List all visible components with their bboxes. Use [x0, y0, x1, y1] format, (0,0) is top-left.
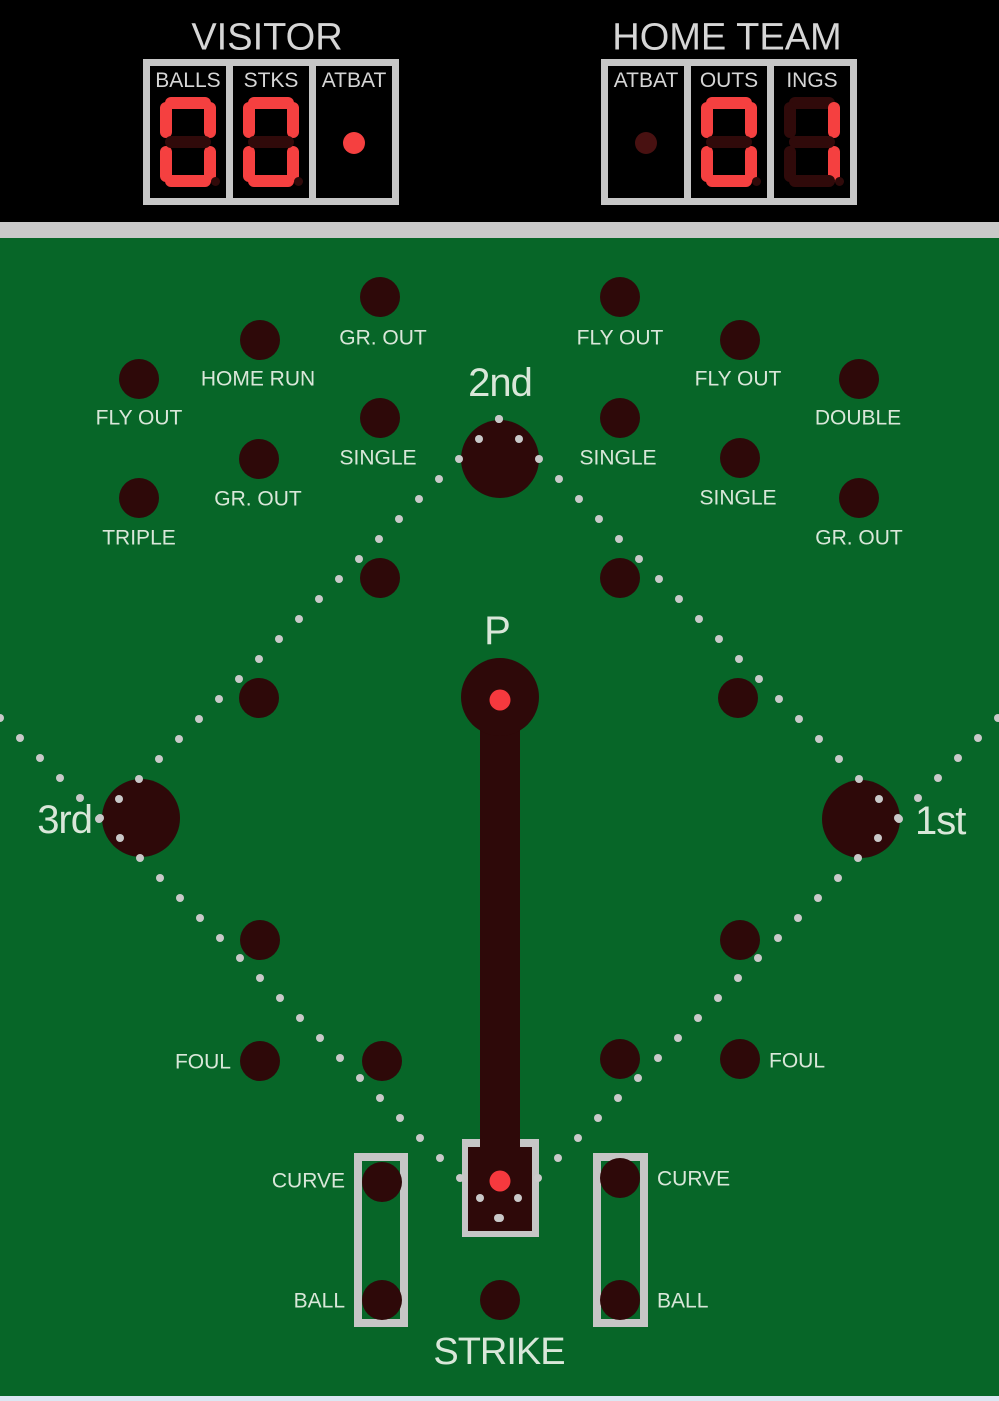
hole-label-fly-out: FLY OUT: [577, 328, 664, 349]
base-path-dot: [456, 1174, 464, 1182]
base-path-dot: [335, 575, 343, 583]
hole-single[interactable]: [600, 398, 640, 438]
base-path-dot: [436, 1154, 444, 1162]
base-path-dot: [614, 1094, 622, 1102]
base-path-dot: [735, 655, 743, 663]
hole-unlabeled[interactable]: [720, 920, 760, 960]
base-path-dot: [376, 1094, 384, 1102]
hole-ball[interactable]: [362, 1280, 402, 1320]
hole-fly-out[interactable]: [720, 320, 760, 360]
hole-label-home-run: HOME RUN: [201, 369, 315, 390]
base-path-dot: [654, 1054, 662, 1062]
base-path-dot: [595, 515, 603, 523]
base-path-dot: [675, 595, 683, 603]
base-path-dot: [515, 435, 523, 443]
hole-label-curve: CURVE: [272, 1171, 345, 1192]
third-base-hole[interactable]: [102, 779, 180, 857]
base-path-dot: [156, 874, 164, 882]
base-path-dot: [196, 914, 204, 922]
hole-foul[interactable]: [240, 1041, 280, 1081]
base-path-dot: [116, 834, 124, 842]
base-path-dot: [934, 774, 942, 782]
base-path-dot: [775, 695, 783, 703]
hole-single[interactable]: [720, 438, 760, 478]
hole-home-run[interactable]: [240, 320, 280, 360]
base-path-dot: [295, 615, 303, 623]
hole-double[interactable]: [839, 359, 879, 399]
base-path-dot: [574, 1134, 582, 1142]
base-path-dot: [476, 1194, 484, 1202]
hole-label-gr-out: GR. OUT: [339, 328, 427, 349]
base-path-dot: [396, 1114, 404, 1122]
base-path-dot: [855, 775, 863, 783]
hole-unlabeled[interactable]: [239, 678, 279, 718]
base-path-dot: [815, 735, 823, 743]
hole-label-single: SINGLE: [579, 448, 656, 469]
base-path-dot: [774, 934, 782, 942]
hole-strike[interactable]: [480, 1280, 520, 1320]
base-path-dot: [575, 495, 583, 503]
hole-gr-out[interactable]: [239, 439, 279, 479]
hole-unlabeled[interactable]: [240, 920, 280, 960]
hole-label-fly-out: FLY OUT: [695, 369, 782, 390]
hole-label-strike: STRIKE: [433, 1333, 564, 1371]
hole-label-foul: FOUL: [175, 1052, 231, 1073]
hole-gr-out[interactable]: [360, 277, 400, 317]
hole-triple[interactable]: [119, 478, 159, 518]
base-path-dot: [155, 755, 163, 763]
base-path-dot: [355, 555, 363, 563]
base-path-dot: [734, 974, 742, 982]
base-path-dot: [0, 714, 4, 722]
base-path-dot: [36, 754, 44, 762]
base-path-dot: [634, 1074, 642, 1082]
base-path-dot: [714, 994, 722, 1002]
base-path-dot: [554, 1154, 562, 1162]
hole-unlabeled[interactable]: [600, 558, 640, 598]
base-path-dot: [235, 675, 243, 683]
playfield-inner: GR. OUTFLY OUTHOME RUNFLY OUTFLY OUTDOUB…: [0, 0, 999, 1401]
hole-label-foul: FOUL: [769, 1051, 825, 1072]
base-path-dot: [236, 954, 244, 962]
base-path-dot: [176, 894, 184, 902]
base-path-dot: [874, 834, 882, 842]
base-path-dot: [356, 1074, 364, 1082]
base-path-dot: [275, 635, 283, 643]
base-path-dot: [455, 455, 463, 463]
base-path-dot: [695, 615, 703, 623]
base-path-dot: [755, 675, 763, 683]
hole-unlabeled[interactable]: [600, 1039, 640, 1079]
base-path-dot: [135, 775, 143, 783]
base-path-dot: [555, 475, 563, 483]
hole-ball[interactable]: [600, 1280, 640, 1320]
pitcher-base-label: P: [484, 611, 510, 651]
base-path-dot: [416, 1134, 424, 1142]
base-path-dot: [854, 854, 862, 862]
hole-fly-out[interactable]: [600, 277, 640, 317]
base-path-dot: [795, 715, 803, 723]
base-path-dot: [494, 1214, 502, 1222]
base-path-dot: [635, 555, 643, 563]
hole-foul[interactable]: [720, 1039, 760, 1079]
game-board: VISITOR HOME TEAM BALLSSTKSATBAT ATBATOU…: [0, 0, 999, 1401]
third-base-label: 3rd: [37, 800, 92, 840]
hole-label-curve: CURVE: [657, 1169, 730, 1190]
bottom-edge-line: [0, 1396, 999, 1401]
hole-curve[interactable]: [362, 1162, 402, 1202]
base-path-dot: [594, 1114, 602, 1122]
base-path-dot: [195, 715, 203, 723]
base-path-dot: [395, 515, 403, 523]
base-path-dot: [315, 595, 323, 603]
base-path-dot: [56, 774, 64, 782]
base-path-dot: [276, 994, 284, 1002]
base-path-dot: [535, 455, 543, 463]
second-base-hole[interactable]: [461, 420, 539, 498]
hole-unlabeled[interactable]: [362, 1041, 402, 1081]
hole-label-single: SINGLE: [699, 488, 776, 509]
base-path-dot: [875, 795, 883, 803]
base-path-dot: [215, 695, 223, 703]
base-path-dot: [296, 1014, 304, 1022]
base-path-dot: [495, 415, 503, 423]
base-path-dot: [255, 655, 263, 663]
base-path-dot: [754, 954, 762, 962]
pitcher-lane: [480, 697, 520, 1202]
hole-fly-out[interactable]: [119, 359, 159, 399]
base-path-dot: [514, 1194, 522, 1202]
hole-curve[interactable]: [600, 1158, 640, 1198]
base-path-dot: [834, 874, 842, 882]
hole-label-fly-out: FLY OUT: [96, 408, 183, 429]
base-path-dot: [715, 635, 723, 643]
hole-label-single: SINGLE: [339, 448, 416, 469]
pitcher-ball-marker: [490, 690, 511, 711]
base-path-dot: [216, 934, 224, 942]
base-path-dot: [994, 714, 999, 722]
base-path-dot: [136, 854, 144, 862]
base-path-dot: [316, 1034, 324, 1042]
base-path-dot: [375, 535, 383, 543]
base-path-dot: [814, 894, 822, 902]
hole-label-ball: BALL: [657, 1291, 708, 1312]
base-path-dot: [256, 974, 264, 982]
hole-label-double: DOUBLE: [815, 408, 901, 429]
base-path-dot: [835, 755, 843, 763]
hole-label-gr-out: GR. OUT: [214, 489, 302, 510]
base-path-dot: [794, 914, 802, 922]
base-path-dot: [415, 495, 423, 503]
base-path-dot: [674, 1034, 682, 1042]
base-path-dot: [615, 535, 623, 543]
hole-single[interactable]: [360, 398, 400, 438]
hole-label-ball: BALL: [294, 1291, 345, 1312]
base-path-dot: [694, 1014, 702, 1022]
hole-unlabeled[interactable]: [718, 678, 758, 718]
playfield: GR. OUTFLY OUTHOME RUNFLY OUTFLY OUTDOUB…: [0, 238, 999, 1401]
base-path-dot: [96, 814, 104, 822]
home-plate-ball-marker: [490, 1171, 511, 1192]
base-path-dot: [534, 1174, 542, 1182]
hole-label-triple: TRIPLE: [102, 528, 176, 549]
base-path-dot: [475, 435, 483, 443]
base-path-dot: [336, 1054, 344, 1062]
second-base-label: 2nd: [468, 363, 532, 403]
base-path-dot: [175, 735, 183, 743]
base-path-dot: [655, 575, 663, 583]
base-path-dot: [954, 754, 962, 762]
hole-unlabeled[interactable]: [360, 558, 400, 598]
first-base-hole[interactable]: [822, 780, 900, 858]
base-path-dot: [115, 795, 123, 803]
base-path-dot: [16, 734, 24, 742]
first-base-label: 1st: [915, 801, 965, 841]
hole-gr-out[interactable]: [839, 478, 879, 518]
base-path-dot: [974, 734, 982, 742]
base-path-dot: [894, 814, 902, 822]
hole-label-gr-out: GR. OUT: [815, 528, 903, 549]
base-path-dot: [435, 475, 443, 483]
